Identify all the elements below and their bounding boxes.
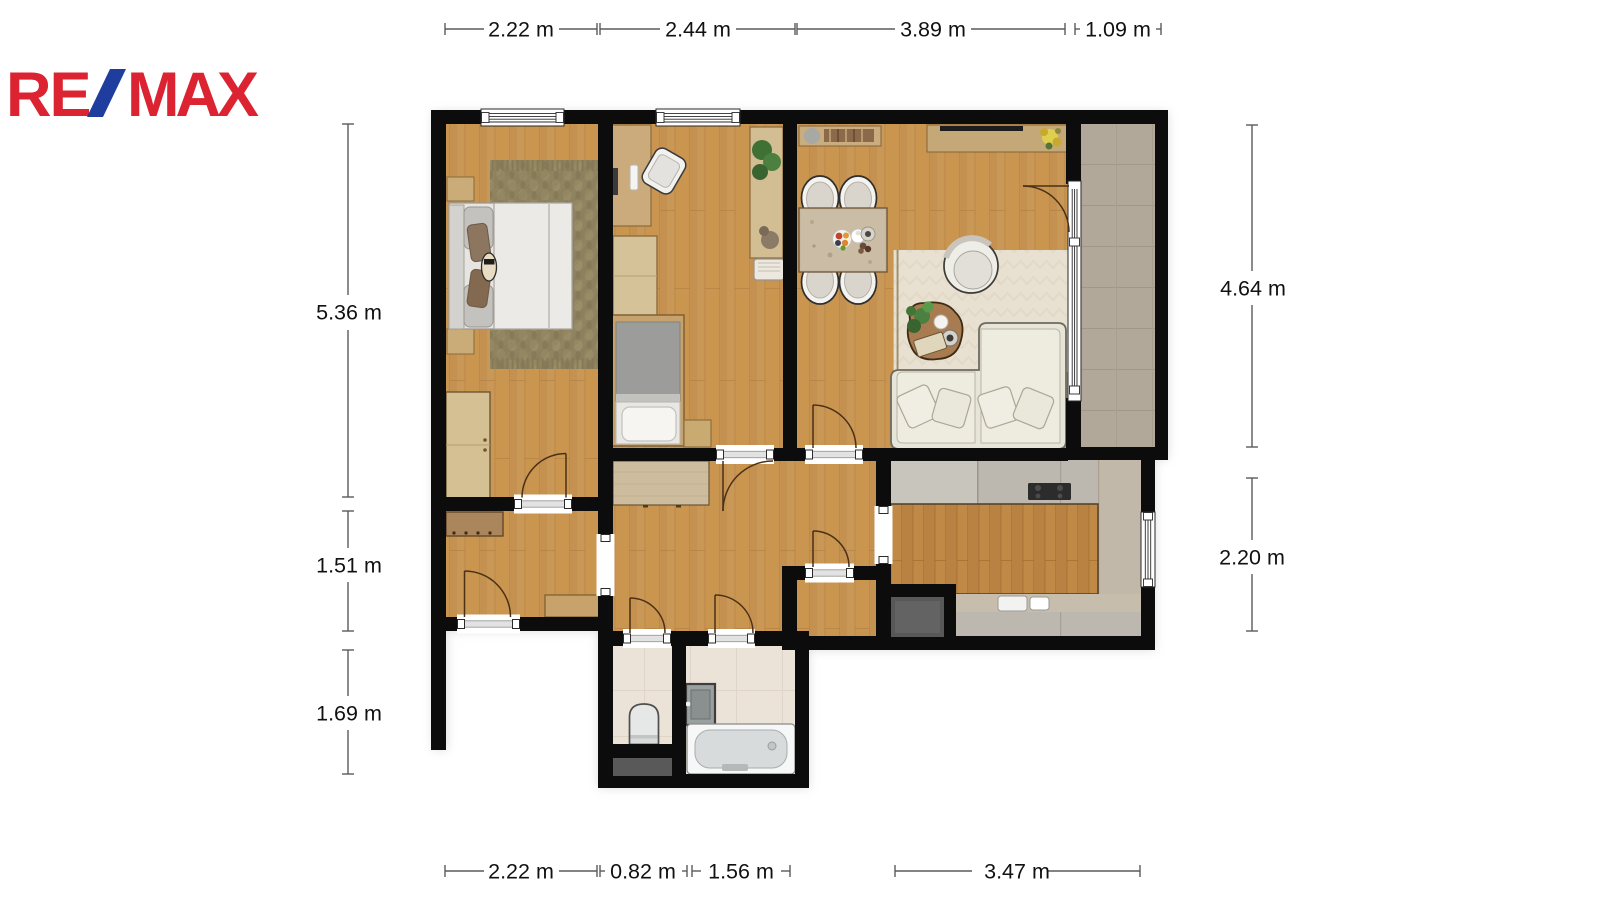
svg-text:1.56 m: 1.56 m [708, 860, 774, 884]
svg-text:2.20 m: 2.20 m [1219, 546, 1285, 570]
svg-text:0.82 m: 0.82 m [610, 860, 676, 884]
svg-text:5.36 m: 5.36 m [316, 301, 382, 325]
svg-text:4.64 m: 4.64 m [1220, 277, 1286, 301]
svg-text:1.51 m: 1.51 m [316, 554, 382, 578]
svg-text:2.44 m: 2.44 m [665, 18, 731, 42]
svg-text:2.22 m: 2.22 m [488, 18, 554, 42]
svg-text:RE: RE [6, 60, 90, 130]
svg-text:1.09 m: 1.09 m [1085, 18, 1151, 42]
svg-text:MAX: MAX [127, 60, 259, 130]
svg-text:3.89 m: 3.89 m [900, 18, 966, 42]
svg-text:1.69 m: 1.69 m [316, 702, 382, 726]
svg-text:2.22 m: 2.22 m [488, 860, 554, 884]
svg-text:3.47 m: 3.47 m [984, 860, 1050, 884]
